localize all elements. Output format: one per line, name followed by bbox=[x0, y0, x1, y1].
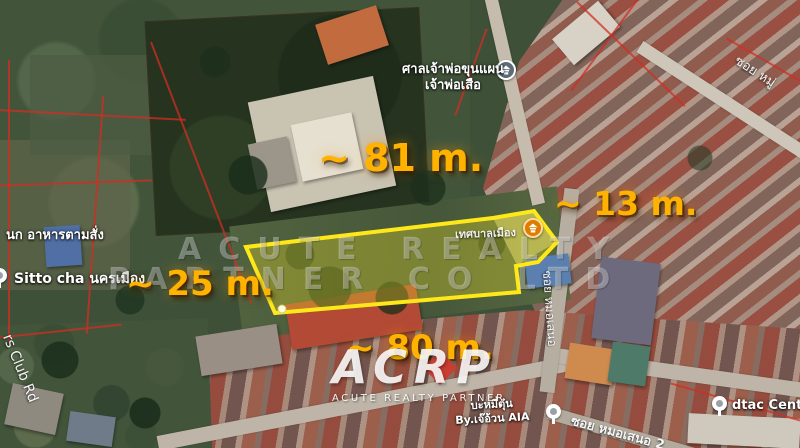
logo-company-name: ACUTE REALTY PARTNER bbox=[332, 393, 552, 404]
shrine-label-line1: ศาลเจ้าพ่อขุนแผน bbox=[388, 62, 518, 78]
rooftop bbox=[66, 411, 116, 447]
measurement-left-side: ~ 25 m. bbox=[126, 264, 274, 304]
shrine-label-line2: เจ้าพ่อเสือ bbox=[388, 78, 518, 94]
company-logo: ACRP ACUTE REALTY PARTNER bbox=[332, 344, 552, 404]
map-pin-dtac bbox=[712, 396, 727, 411]
measurement-top-side: ~ 81 m. bbox=[318, 136, 483, 180]
shrine-label: ศาลเจ้าพ่อขุนแผน เจ้าพ่อเสือ bbox=[388, 62, 518, 95]
map-pin-noodle-shop bbox=[546, 404, 561, 419]
cadastral-line bbox=[8, 60, 10, 342]
satellite-map: ศาลเจ้าพ่อขุนแผน เจ้าพ่อเสือ นก อาหารตาม… bbox=[0, 0, 800, 448]
logo-acronym: ACRP bbox=[332, 344, 552, 390]
restaurant-label: นก อาหารตามสั่ง bbox=[6, 224, 104, 245]
dtac-center-label: dtac Center bbox=[732, 398, 800, 413]
rooftop bbox=[687, 413, 800, 448]
measurement-right-side: ~ 13 m. bbox=[554, 184, 697, 223]
rooftop bbox=[607, 342, 650, 387]
